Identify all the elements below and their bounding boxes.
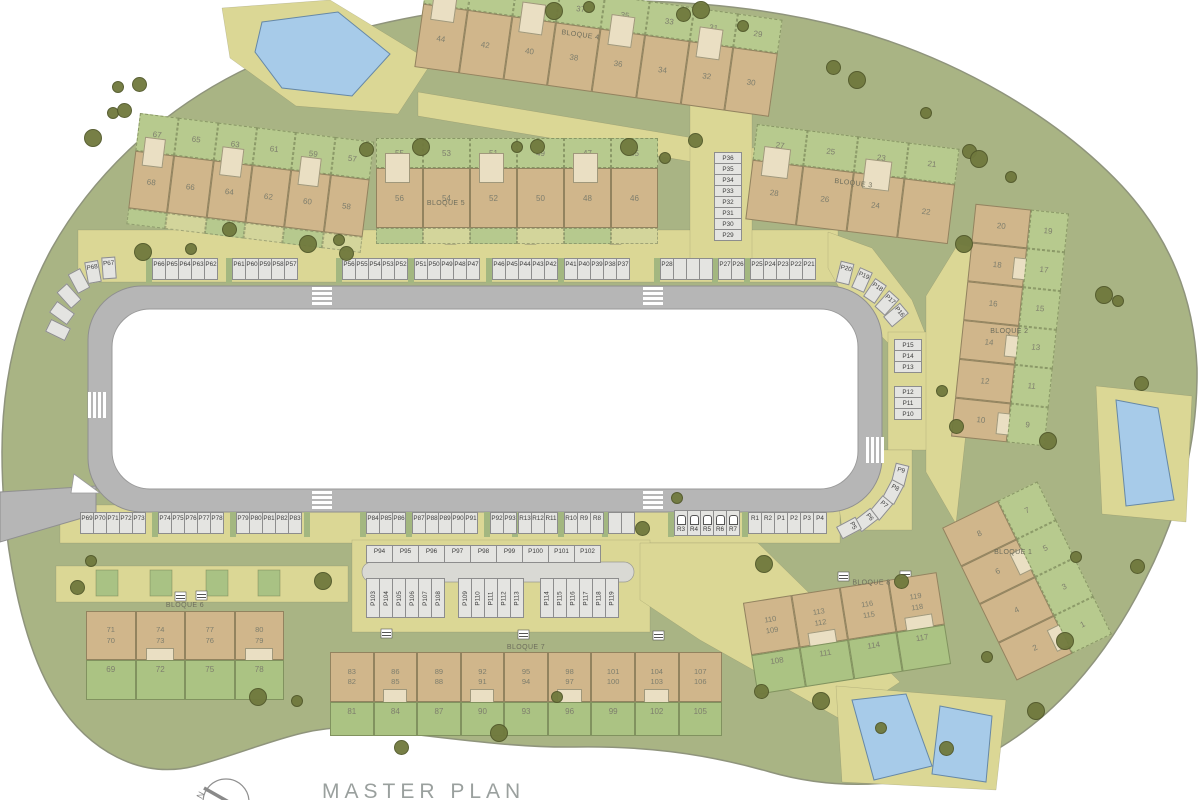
parking-stall: R8 <box>590 512 604 534</box>
tree-icon <box>692 1 710 19</box>
parking-stall: P112 <box>497 578 511 618</box>
tree-icon <box>970 150 988 168</box>
parking-stall: P72 <box>119 512 133 534</box>
ev-parking-stall: R4 <box>687 510 701 536</box>
tree-icon <box>185 243 197 255</box>
unit-pair: 7776 <box>185 611 235 660</box>
parking-column-mid-lower: P12P11P10 <box>894 386 922 419</box>
parking-stall: P53 <box>381 258 395 280</box>
parking-stall: P104 <box>379 578 393 618</box>
unit-pair: 107106 <box>679 652 723 702</box>
parking-stall: P78 <box>210 512 224 534</box>
ev-charger-icon <box>690 515 699 525</box>
unit: 58 <box>323 175 369 237</box>
tree-icon <box>688 133 703 148</box>
parking-stall: P50 <box>427 258 441 280</box>
unit-pair: 8079 <box>235 611 285 660</box>
parking-stall: P107 <box>418 578 432 618</box>
parking-stall: R12 <box>531 512 545 534</box>
tree-icon <box>511 141 523 153</box>
tree-icon <box>936 385 948 397</box>
parking-stall: P94 <box>366 545 393 563</box>
garden-plot: 69 <box>86 660 136 700</box>
unit: 14 <box>959 320 1019 365</box>
tree-icon <box>981 651 993 663</box>
tree-icon <box>291 695 303 707</box>
parking-row-top: P61P60P59P58P57 <box>232 258 297 280</box>
parking-stall: P110 <box>471 578 485 618</box>
parking-stall: P114 <box>540 578 554 618</box>
unit-pair: 101100 <box>591 652 635 702</box>
garden-plot: 15 <box>1019 287 1061 330</box>
unit: 52 <box>470 168 517 228</box>
parking-stall: P39 <box>590 258 604 280</box>
parking-stall: P81 <box>262 512 276 534</box>
unit: 56 <box>376 168 423 228</box>
tree-icon <box>112 81 124 93</box>
unit: 12 <box>955 359 1015 404</box>
parking-stall: P90 <box>451 512 465 534</box>
parking-row-bottom: P92P93 <box>490 512 516 534</box>
ev-charger-icon <box>703 515 712 525</box>
parking-stall: P38 <box>603 258 617 280</box>
tree-icon <box>551 691 563 703</box>
parking-row-bottom: R13R12R11 <box>518 512 557 534</box>
garden-plot: 25 <box>803 130 858 172</box>
ev-charger-icon <box>677 515 686 525</box>
parking-stall: P116 <box>566 578 580 618</box>
parking-stall: P118 <box>592 578 606 618</box>
tree-icon <box>359 142 374 157</box>
parking-stall: P113 <box>510 578 524 618</box>
ev-charger-icon <box>729 515 738 525</box>
parking-stall: P3 <box>800 512 814 534</box>
parking-stall <box>608 512 622 534</box>
parking-stall: P49 <box>440 258 454 280</box>
parking-stall: P43 <box>531 258 545 280</box>
unit-pair: 104103 <box>635 652 679 702</box>
tree-icon <box>1005 171 1017 183</box>
tree-icon <box>949 419 964 434</box>
tree-icon <box>583 1 595 13</box>
parking-row-top: P46P45P44P43P42 <box>492 258 557 280</box>
parking-column-mid-upper: P15P14P13 <box>894 339 922 372</box>
tree-icon <box>755 555 773 573</box>
garden-plot: 11 <box>1011 365 1053 408</box>
parking-stall: R1 <box>748 512 762 534</box>
tree-icon <box>490 724 508 742</box>
garden-plot: 21 <box>904 143 959 185</box>
parking-stall: P97 <box>444 545 471 563</box>
parking-stall <box>699 258 713 280</box>
parking-stall: R13 <box>518 512 532 534</box>
garden-plot: 93 <box>504 702 548 736</box>
parking-stall: P52 <box>394 258 408 280</box>
parking-stall <box>621 512 635 534</box>
parking-stall: P41 <box>564 258 578 280</box>
page-title: MASTER PLAN <box>322 780 525 800</box>
block-bloque-7: BLOQUE 7 8382868589889291959498971011001… <box>330 638 722 736</box>
unit: 28 <box>745 160 803 226</box>
parking-stall: P61 <box>232 258 246 280</box>
parking-stall: P2 <box>787 512 801 534</box>
parking-stall: P51 <box>414 258 428 280</box>
parking-column-right: P36P35P34P33P32P31P30P29 <box>714 152 742 240</box>
parking-stall <box>686 258 700 280</box>
tree-icon <box>1134 376 1149 391</box>
garden-plot: 65 <box>174 118 218 161</box>
garden-plot: 114 <box>848 632 903 679</box>
parking-stall <box>673 258 687 280</box>
parking-stall: P93 <box>503 512 517 534</box>
parking-stall: P10 <box>894 408 922 420</box>
tree-icon <box>85 555 97 567</box>
tree-icon <box>84 129 102 147</box>
unit: 48 <box>564 168 611 228</box>
parking-stall: P64 <box>178 258 192 280</box>
parking-stall: P22 <box>789 258 803 280</box>
parking-stall: P91 <box>464 512 478 534</box>
master-plan-canvas: 676563615957 686664626058 555351494745 5… <box>0 0 1200 800</box>
parking-stall: P103 <box>366 578 380 618</box>
unit: 22 <box>897 178 955 244</box>
parking-stall: P111 <box>484 578 498 618</box>
tree-icon <box>676 7 691 22</box>
parking-stall: P74 <box>158 512 172 534</box>
parking-stall: P40 <box>577 258 591 280</box>
parking-stall: P84 <box>366 512 380 534</box>
parking-stall: P108 <box>431 578 445 618</box>
parking-stall: P69 <box>80 512 94 534</box>
garden-plot: 99 <box>591 702 635 736</box>
parking-stall: P99 <box>496 545 523 563</box>
tree-icon <box>671 492 683 504</box>
garden-plot: 53 <box>423 138 470 168</box>
parking-row-top: P66P65P64P63P62 <box>152 258 217 280</box>
parking-stall: P98 <box>470 545 497 563</box>
tree-icon <box>530 139 545 154</box>
parking-stall: P101 <box>548 545 575 563</box>
parking-row-top: P41P40P39P38P37 <box>564 258 629 280</box>
garden-plot: 87 <box>417 702 461 736</box>
parking-row-bottom: P79P80P81P82P83 <box>236 512 301 534</box>
tree-icon <box>920 107 932 119</box>
parking-stall: P60 <box>245 258 259 280</box>
tree-icon <box>299 235 317 253</box>
tree-icon <box>1070 551 1082 563</box>
garden-plot: 19 <box>1027 210 1069 253</box>
patio-strip <box>376 228 658 244</box>
unit-pair: 8685 <box>374 652 418 702</box>
parking-stall: P75 <box>171 512 185 534</box>
parking-stall: P45 <box>505 258 519 280</box>
unit: 16 <box>963 281 1023 326</box>
parking-row-p114: P114P115P116P117P118P119 <box>540 578 618 618</box>
parking-stall: P25 <box>750 258 764 280</box>
tree-icon <box>754 684 769 699</box>
parking-stall: P67 <box>101 257 117 280</box>
parking-stall: P102 <box>574 545 601 563</box>
parking-row-bottom: P87P88P89P90P91 <box>412 512 477 534</box>
unit: 54 <box>423 168 470 228</box>
parking-row-p94: P94P95P96P97P98P99P100P101P102 <box>366 545 600 563</box>
parking-stall: P86 <box>392 512 406 534</box>
tree-icon <box>132 77 147 92</box>
parking-row-bottom-right: R1R2P1P2P3P4 <box>748 512 826 534</box>
tree-icon <box>339 246 354 261</box>
tree-icon <box>939 741 954 756</box>
ev-parking-stall: R5 <box>700 510 714 536</box>
parking-row-top: P51P50P49P48P47 <box>414 258 479 280</box>
block-label: BLOQUE 2 <box>966 328 1052 335</box>
parking-stall: P82 <box>275 512 289 534</box>
parking-stall: P37 <box>616 258 630 280</box>
tree-icon <box>955 235 973 253</box>
parking-stall: P106 <box>405 578 419 618</box>
parking-stall: R2 <box>761 512 775 534</box>
parking-stall: R9 <box>577 512 591 534</box>
parking-stall: P83 <box>288 512 302 534</box>
parking-row-bottom: P69P70P71P72P73 <box>80 512 145 534</box>
tree-icon <box>812 692 830 710</box>
parking-row-bottom: P84P85P86 <box>366 512 405 534</box>
garden-plot: 117 <box>896 625 951 672</box>
garden-plot: 61 <box>252 127 296 170</box>
parking-stall: P57 <box>284 258 298 280</box>
parking-stall: P24 <box>763 258 777 280</box>
parking-stall: P96 <box>418 545 445 563</box>
ring-road-inner-area <box>112 309 858 489</box>
unit-pair: 8988 <box>417 652 461 702</box>
tree-icon <box>1112 295 1124 307</box>
parking-stall: P27 <box>718 258 732 280</box>
parking-stall: P28 <box>660 258 674 280</box>
unit-pair: 9594 <box>504 652 548 702</box>
parking-stall: P87 <box>412 512 426 534</box>
garden-plot: 75 <box>185 660 235 700</box>
garden-plot: 102 <box>635 702 679 736</box>
parking-stall: P4 <box>813 512 827 534</box>
block-label: BLOQUE 7 <box>330 644 722 651</box>
parking-row-top: P56P55P54P53P52 <box>342 258 407 280</box>
tree-icon <box>635 521 650 536</box>
unit-pair: 9291 <box>461 652 505 702</box>
parking-stall: P73 <box>132 512 146 534</box>
ev-parking-stall: R3 <box>674 510 688 536</box>
unit: 18 <box>967 243 1027 288</box>
tree-icon <box>659 152 671 164</box>
parking-stall: P1 <box>774 512 788 534</box>
tree-icon <box>134 243 152 261</box>
parking-stall: P100 <box>522 545 549 563</box>
parking-row-top: P27P26 <box>718 258 744 280</box>
parking-stall: P26 <box>731 258 745 280</box>
parking-stall: P56 <box>342 258 356 280</box>
parking-stall: P29 <box>714 229 742 241</box>
parking-stall: P58 <box>271 258 285 280</box>
parking-stall: P109 <box>458 578 472 618</box>
ev-parking-stall: R6 <box>713 510 727 536</box>
parking-stall: P119 <box>605 578 619 618</box>
unit-pair: 8382 <box>330 652 374 702</box>
parking-stall: P80 <box>249 512 263 534</box>
parking-stall: P115 <box>553 578 567 618</box>
tree-icon <box>1056 632 1074 650</box>
unit: 46 <box>611 168 658 228</box>
parking-stall: P105 <box>392 578 406 618</box>
parking-stall: P95 <box>392 545 419 563</box>
parking-stall: P21 <box>802 258 816 280</box>
block-label: BLOQUE 1 <box>968 549 1058 556</box>
tree-icon <box>394 740 409 755</box>
tree-icon <box>545 2 563 20</box>
parking-stall: P117 <box>579 578 593 618</box>
parking-row-top: P28 <box>660 258 712 280</box>
garden-plot: 72 <box>136 660 186 700</box>
parking-stall: P77 <box>197 512 211 534</box>
tree-icon <box>1039 432 1057 450</box>
garden-plot: 105 <box>679 702 723 736</box>
block-label: BLOQUE 6 <box>86 602 284 609</box>
tree-icon <box>620 138 638 156</box>
parking-stall: P63 <box>191 258 205 280</box>
parking-stall: P47 <box>466 258 480 280</box>
unit-pair: 110109 <box>743 595 800 655</box>
tree-icon <box>333 234 345 246</box>
tree-icon <box>826 60 841 75</box>
parking-stall: P55 <box>355 258 369 280</box>
parking-stall: P70 <box>93 512 107 534</box>
garden-plot: 96 <box>548 702 592 736</box>
tree-icon <box>249 688 267 706</box>
parking-stall: P89 <box>438 512 452 534</box>
parking-stall: P42 <box>544 258 558 280</box>
tree-icon <box>412 138 430 156</box>
tree-icon <box>1095 286 1113 304</box>
parking-stall: P85 <box>379 512 393 534</box>
unit: 20 <box>971 204 1031 249</box>
unit-pair: 116115 <box>840 580 897 640</box>
garden-plot: 84 <box>374 702 418 736</box>
tree-icon <box>117 103 132 118</box>
tree-icon <box>314 572 332 590</box>
parking-stall: P88 <box>425 512 439 534</box>
parking-stall: P48 <box>453 258 467 280</box>
tree-icon <box>1130 559 1145 574</box>
unit: 30 <box>725 47 778 117</box>
block-bloque-6: BLOQUE 6 7170747377768079 69727578 <box>86 598 284 700</box>
tree-icon <box>737 20 749 32</box>
unit-pair: 7473 <box>136 611 186 660</box>
parking-stall: P44 <box>518 258 532 280</box>
north-compass: N <box>190 772 270 800</box>
block-label: BLOQUE 5 <box>406 200 486 207</box>
parking-stall: P46 <box>492 258 506 280</box>
ev-parking-stall: R7 <box>726 510 740 536</box>
parking-stall: P79 <box>236 512 250 534</box>
parking-stall: P62 <box>204 258 218 280</box>
parking-stall: P71 <box>106 512 120 534</box>
tree-icon <box>222 222 237 237</box>
parking-stall: P76 <box>184 512 198 534</box>
parking-row-ev: R3R4R5R6R7 <box>674 510 739 536</box>
garden-plot: 81 <box>330 702 374 736</box>
parking-stall: P65 <box>165 258 179 280</box>
parking-stall: P59 <box>258 258 272 280</box>
parking-stall: R10 <box>564 512 578 534</box>
unit: 50 <box>517 168 564 228</box>
tree-icon <box>894 574 909 589</box>
parking-stall: P66 <box>152 258 166 280</box>
parking-row-bottom: P74P75P76P77P78 <box>158 512 223 534</box>
tree-icon <box>875 722 887 734</box>
unit-pair: 7170 <box>86 611 136 660</box>
parking-row-p103: P103P104P105P106P107P108 <box>366 578 444 618</box>
parking-stall: R11 <box>544 512 558 534</box>
parking-stall: P92 <box>490 512 504 534</box>
tree-icon <box>1027 702 1045 720</box>
tree-icon <box>848 71 866 89</box>
parking-stall: P23 <box>776 258 790 280</box>
parking-row-top: P25P24P23P22P21 <box>750 258 815 280</box>
ev-charger-icon <box>716 515 725 525</box>
parking-row-bottom: R10R9R8 <box>564 512 603 534</box>
parking-row-p109: P109P110P111P112P113 <box>458 578 523 618</box>
garden-plot: 111 <box>800 640 855 687</box>
parking-stall: P13 <box>894 361 922 373</box>
parking-row-bottom <box>608 512 634 534</box>
unit-pair: 113112 <box>791 587 848 647</box>
garden-plot: 17 <box>1023 248 1065 291</box>
parking-stall: P54 <box>368 258 382 280</box>
tree-icon <box>70 580 85 595</box>
